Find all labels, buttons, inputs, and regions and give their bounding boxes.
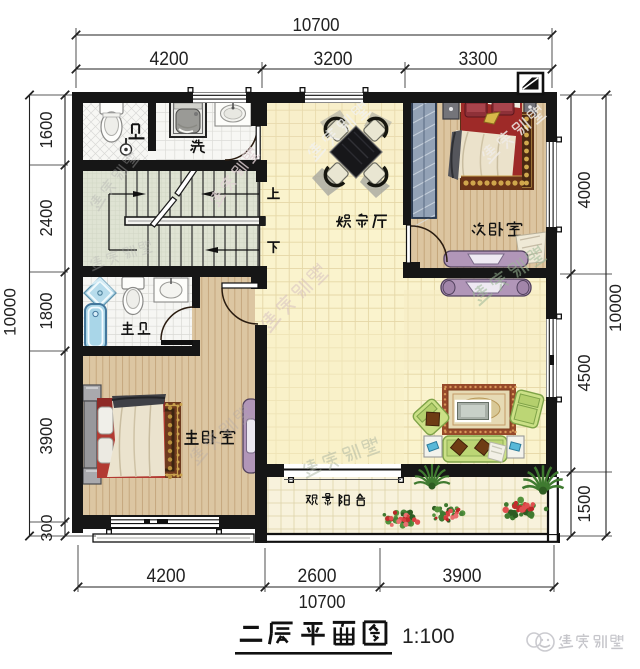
- svg-text:4200: 4200: [150, 49, 189, 70]
- svg-text:4200: 4200: [147, 566, 186, 587]
- svg-text:1800: 1800: [36, 292, 56, 329]
- svg-text:10000: 10000: [1, 288, 20, 336]
- svg-text:10000: 10000: [606, 284, 625, 332]
- svg-text:1500: 1500: [574, 485, 594, 522]
- svg-text:2600: 2600: [298, 566, 337, 587]
- svg-text:1:100: 1:100: [402, 625, 455, 648]
- svg-text:300: 300: [39, 514, 56, 541]
- svg-text:3900: 3900: [36, 417, 56, 454]
- svg-text:4000: 4000: [574, 171, 594, 208]
- svg-text:2400: 2400: [36, 199, 56, 236]
- svg-text:1600: 1600: [36, 111, 56, 148]
- svg-text:3200: 3200: [314, 49, 353, 70]
- svg-text:10700: 10700: [299, 592, 346, 612]
- svg-text:3900: 3900: [443, 566, 482, 587]
- svg-text:4500: 4500: [574, 354, 594, 391]
- svg-text:3300: 3300: [459, 49, 498, 70]
- svg-text:10700: 10700: [293, 15, 340, 35]
